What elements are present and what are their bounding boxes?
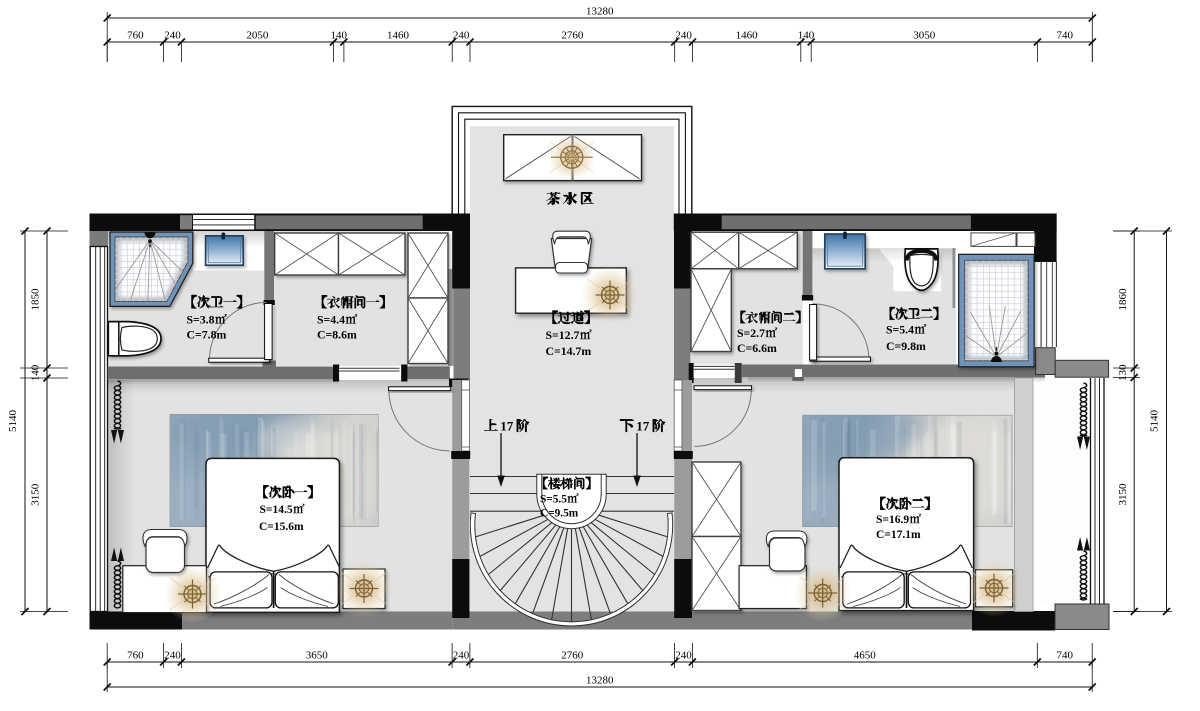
svg-text:140: 140 xyxy=(30,364,42,381)
svg-text:5140: 5140 xyxy=(1149,410,1161,433)
svg-text:240: 240 xyxy=(675,30,692,42)
svg-text:240: 240 xyxy=(453,650,470,662)
svg-text:C=7.8m: C=7.8m xyxy=(187,328,227,342)
svg-text:2760: 2760 xyxy=(561,30,584,42)
svg-text:C=6.6m: C=6.6m xyxy=(737,341,777,355)
svg-text:17: 17 xyxy=(500,419,514,434)
svg-text:140: 140 xyxy=(330,30,347,42)
svg-text:C=17.1m: C=17.1m xyxy=(876,529,921,541)
svg-text:2760: 2760 xyxy=(561,650,584,662)
svg-text:740: 740 xyxy=(1057,650,1074,662)
svg-text:240: 240 xyxy=(164,30,181,42)
svg-text:S=4.4: S=4.4 xyxy=(317,313,345,327)
svg-text:3150: 3150 xyxy=(30,483,42,506)
svg-text:2050: 2050 xyxy=(246,30,269,42)
svg-text:1860: 1860 xyxy=(1117,288,1129,311)
svg-text:3650: 3650 xyxy=(306,650,329,662)
svg-text:3150: 3150 xyxy=(1117,483,1129,506)
svg-text:760: 760 xyxy=(127,650,144,662)
svg-text:4650: 4650 xyxy=(854,650,877,662)
svg-text:C=9.8m: C=9.8m xyxy=(886,339,926,353)
svg-text:S=3.8: S=3.8 xyxy=(187,313,215,327)
svg-text:240: 240 xyxy=(164,650,181,662)
svg-text:S=5.5: S=5.5 xyxy=(540,494,567,506)
svg-text:S=2.7: S=2.7 xyxy=(737,326,765,340)
svg-text:740: 740 xyxy=(1057,30,1074,42)
svg-text:S=12.7: S=12.7 xyxy=(546,328,580,342)
svg-text:760: 760 xyxy=(127,30,144,42)
svg-text:17: 17 xyxy=(636,419,650,434)
svg-text:240: 240 xyxy=(675,650,692,662)
svg-text:3050: 3050 xyxy=(913,30,936,42)
svg-text:130: 130 xyxy=(1117,364,1129,381)
svg-text:1460: 1460 xyxy=(387,30,410,42)
svg-text:C=9.5m: C=9.5m xyxy=(540,508,579,520)
svg-text:140: 140 xyxy=(798,30,815,42)
svg-text:C=14.7m: C=14.7m xyxy=(546,344,592,358)
svg-text:240: 240 xyxy=(453,30,470,42)
svg-text:5140: 5140 xyxy=(7,410,19,433)
svg-text:S=14.5: S=14.5 xyxy=(260,504,293,516)
svg-text:13280: 13280 xyxy=(586,675,614,687)
svg-text:S=16.9: S=16.9 xyxy=(876,514,909,526)
svg-text:S=5.4: S=5.4 xyxy=(886,323,914,337)
svg-text:C=15.6m: C=15.6m xyxy=(259,521,304,533)
svg-text:13280: 13280 xyxy=(586,6,614,18)
svg-text:C=8.6m: C=8.6m xyxy=(317,328,357,342)
svg-text:1460: 1460 xyxy=(736,30,759,42)
svg-text:1850: 1850 xyxy=(30,288,42,311)
